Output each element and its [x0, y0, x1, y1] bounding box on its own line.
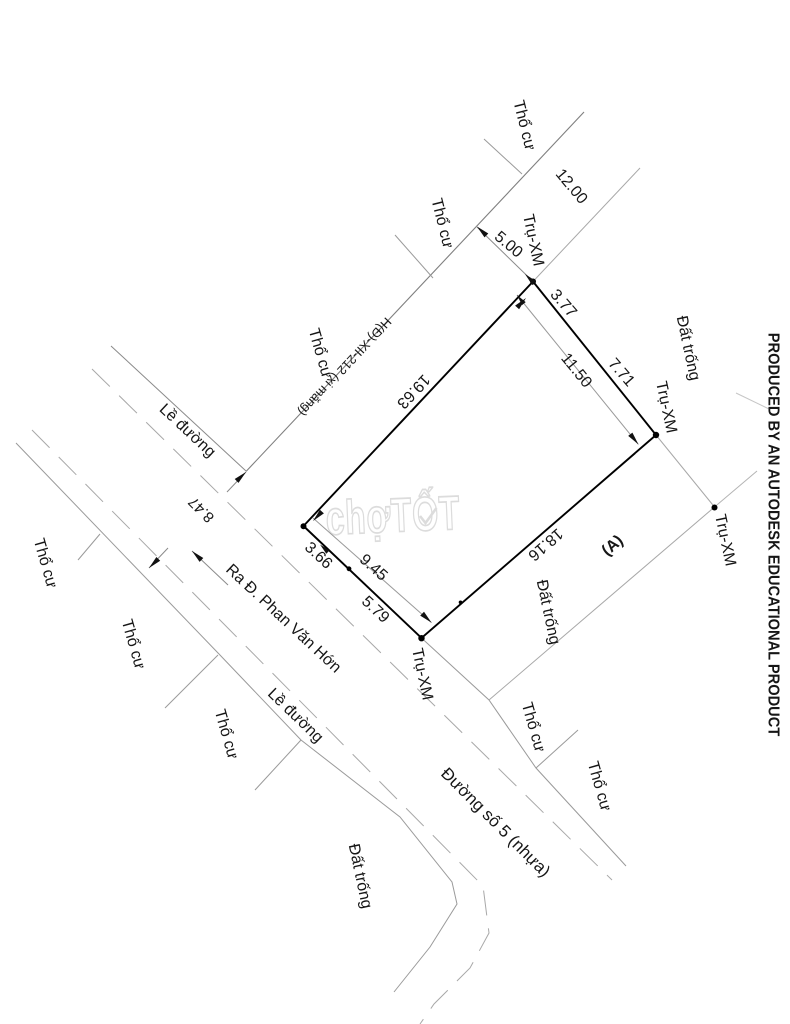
svg-text:PRODUCED BY AN AUTODESK EDUCAT: PRODUCED BY AN AUTODESK EDUCATIONAL PROD…	[764, 333, 782, 737]
svg-text:chợTỐT: chợTỐT	[325, 485, 462, 545]
